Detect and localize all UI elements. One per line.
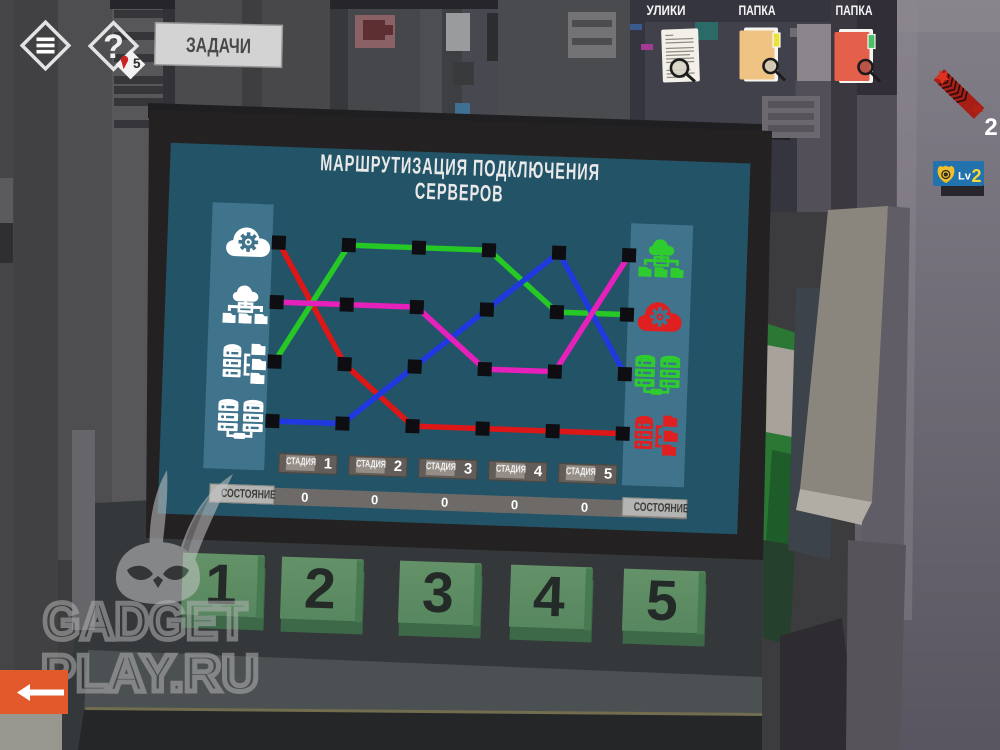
- svg-text:УЛИКИ: УЛИКИ: [647, 3, 686, 18]
- svg-text:3: 3: [421, 560, 455, 625]
- svg-text:GADGET: GADGET: [43, 593, 247, 651]
- svg-text:2: 2: [984, 114, 997, 141]
- svg-text:5: 5: [645, 568, 679, 633]
- svg-text:2: 2: [303, 556, 337, 621]
- svg-text:ПАПКА: ПАПКА: [739, 3, 776, 18]
- svg-text:ЗАДАЧИ: ЗАДАЧИ: [186, 34, 251, 58]
- svg-text:ПАПКА: ПАПКА: [836, 3, 873, 18]
- svg-text:4: 4: [532, 564, 566, 629]
- svg-text:PLAY.RU: PLAY.RU: [41, 645, 259, 703]
- svg-text:2: 2: [971, 166, 981, 186]
- svg-text:5: 5: [133, 56, 141, 71]
- svg-text:Lv: Lv: [958, 171, 972, 183]
